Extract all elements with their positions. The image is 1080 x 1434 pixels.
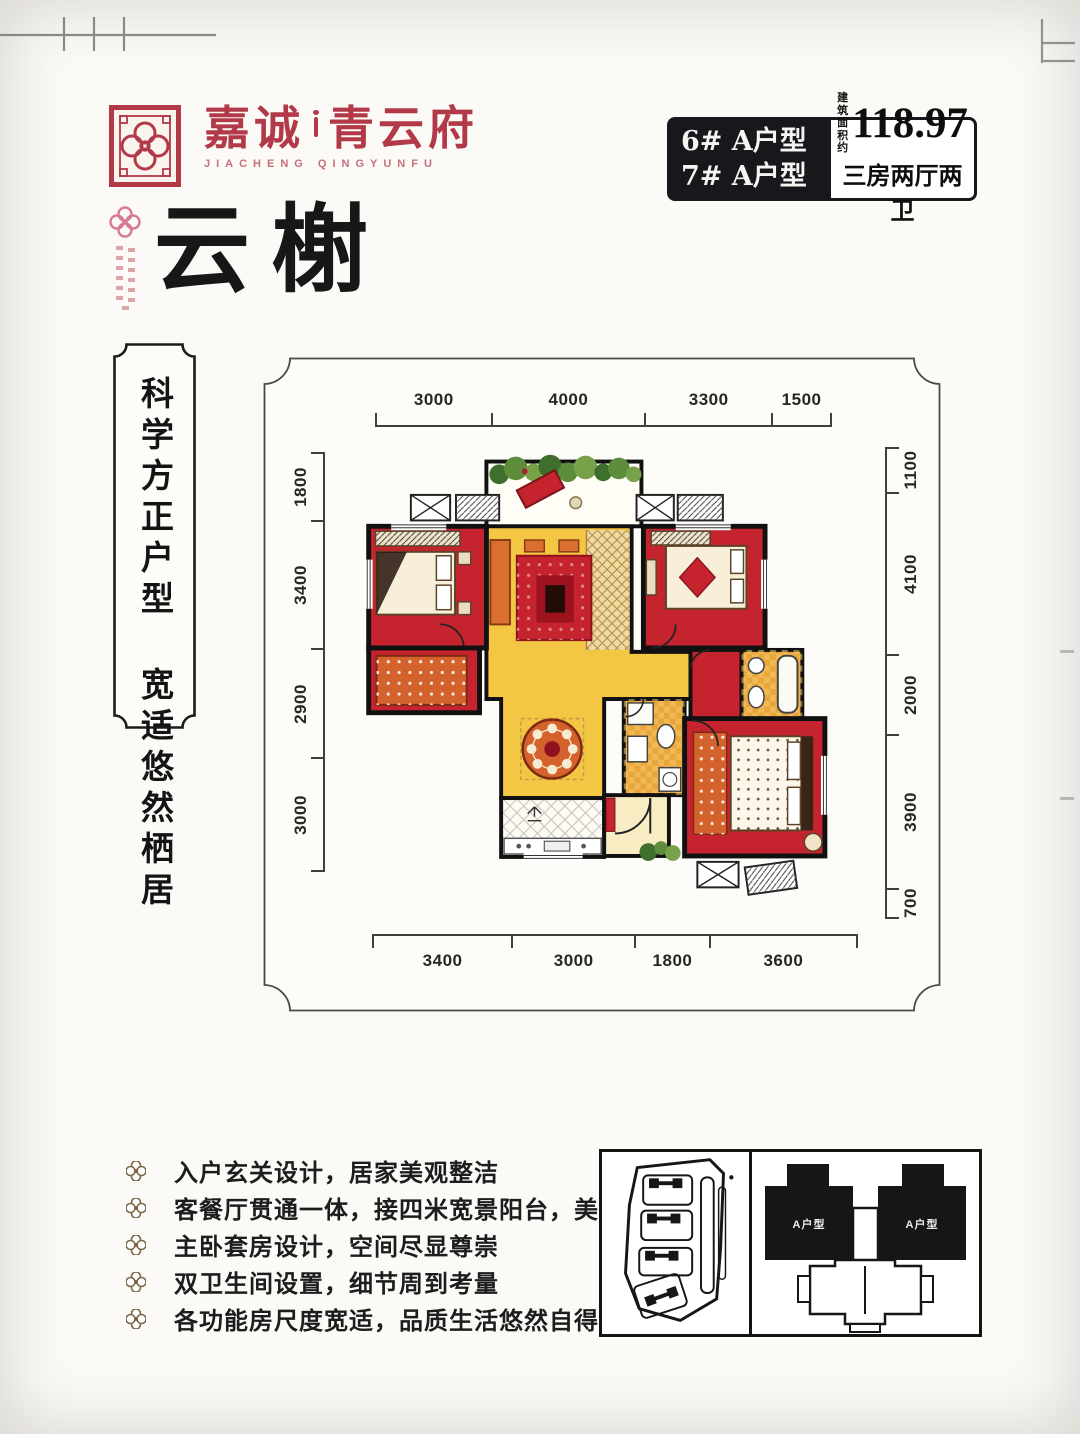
feature-item: 主卧套房设计，空间尽显尊崇 xyxy=(126,1226,674,1263)
dim-label: 1100 xyxy=(901,438,921,502)
dim-label: 3600 xyxy=(763,951,803,971)
feature-text: 双卫生间设置，细节周到考量 xyxy=(174,1264,499,1299)
unit-line-1: 6# A户型 xyxy=(681,126,831,157)
dim-label: 2000 xyxy=(901,663,921,727)
feature-item: 入户玄关设计，居家美观整洁 xyxy=(126,1152,674,1189)
dim-label: 1800 xyxy=(653,951,693,971)
bedroom-secondary-1 xyxy=(369,526,487,648)
feature-list: 入户玄关设计，居家美观整洁 客餐厅贯通一体，接四米宽景阳台，美景尽现 主卧套房设… xyxy=(126,1152,674,1337)
site-plan-panel xyxy=(602,1152,752,1334)
floorplan-drawing xyxy=(352,440,872,905)
bathroom-shared xyxy=(624,699,685,795)
keyplan-panel: A户型 A户型 xyxy=(752,1152,979,1334)
feature-text: 各功能房尺度宽适，品质生活悠然自得 xyxy=(174,1301,599,1336)
dim-label: 4000 xyxy=(548,390,588,410)
floorplan-card: 3000 4000 3300 1500 1800 3400 2900 3000 … xyxy=(263,357,941,1012)
dining-table xyxy=(521,719,584,780)
keyplan-unit-label: A户型 xyxy=(906,1217,939,1231)
brand-name-right: 青云府 xyxy=(328,103,478,154)
dims-right: 1100 4100 2000 3900 700 xyxy=(885,447,897,919)
entry-foyer xyxy=(604,795,681,861)
unit-area-panel: 建筑 面积约 118.97 三房两厅两卫 xyxy=(831,117,977,201)
site-plan-sketch xyxy=(602,1152,749,1334)
dim-label: 3300 xyxy=(689,390,729,410)
room-layout: 三房两厅两卫 xyxy=(837,156,968,226)
flower-bullet-icon xyxy=(126,1272,146,1292)
flower-bullet-icon xyxy=(126,1235,146,1255)
dims-top: 3000 4000 3300 1500 xyxy=(375,397,832,427)
feature-text: 入户玄关设计，居家美观整洁 xyxy=(174,1153,499,1188)
feature-item: 各功能房尺度宽适，品质生活悠然自得 xyxy=(126,1300,674,1337)
title-block: 云榭 xyxy=(104,202,390,325)
suite-hallway xyxy=(690,650,741,719)
page-title: 云榭 xyxy=(154,202,390,325)
keyplan-drawing: A户型 A户型 xyxy=(752,1152,979,1334)
kitchen xyxy=(501,798,604,857)
bathroom-ensuite xyxy=(742,650,803,719)
keyplan-unit-label: A户型 xyxy=(793,1217,826,1231)
registration-mark-top-right xyxy=(1012,16,1078,82)
dim-label: 4100 xyxy=(901,542,921,606)
brand-seal-icon xyxy=(108,103,182,194)
unit-line-2: 7# A户型 xyxy=(681,161,831,192)
flyer-page: 嘉诚 青云府 JIACHENG QINGYUNFU 6# A户型 7# A户型 … xyxy=(0,0,1080,1434)
dims-left: 1800 3400 2900 3000 xyxy=(311,452,323,872)
area-value: 118.97 xyxy=(852,102,968,145)
dim-label: 700 xyxy=(901,871,921,935)
registration-mark-top-left xyxy=(0,8,225,58)
feature-item: 双卫生间设置，细节周到考量 xyxy=(126,1263,674,1300)
unit-spec-box: 6# A户型 7# A户型 建筑 面积约 118.97 三房两厅两卫 xyxy=(667,117,977,201)
title-seal-icon xyxy=(104,202,146,325)
feature-text: 主卧套房设计，空间尽显尊崇 xyxy=(174,1227,499,1262)
dim-label: 3000 xyxy=(554,951,594,971)
locator-diagrams: A户型 A户型 xyxy=(599,1149,982,1337)
dim-label: 3000 xyxy=(291,783,311,847)
dim-label: 3000 xyxy=(414,390,454,410)
brand-separator-mark xyxy=(314,117,318,137)
bedroom-secondary-2 xyxy=(643,526,765,648)
dim-label: 1500 xyxy=(782,390,822,410)
brand-header: 嘉诚 青云府 JIACHENG QINGYUNFU xyxy=(108,103,478,194)
dim-label: 2900 xyxy=(291,672,311,736)
balcony xyxy=(486,455,641,527)
dim-label: 3900 xyxy=(901,780,921,844)
feature-item: 客餐厅贯通一体，接四米宽景阳台，美景尽现 xyxy=(126,1189,674,1226)
slogan-text: 科学方正户型 宽适悠然栖居 xyxy=(131,376,179,913)
brand-name-left: 嘉诚 xyxy=(204,103,304,154)
brand-name: 嘉诚 青云府 xyxy=(204,103,478,154)
flower-bullet-icon xyxy=(126,1198,146,1218)
dims-bottom: 3400 3000 1800 3600 xyxy=(372,934,858,968)
area-label: 建筑 面积约 xyxy=(837,92,848,155)
multi-function-room xyxy=(369,648,480,713)
dim-label: 1800 xyxy=(291,455,311,519)
slogan-banner: 科学方正户型 宽适悠然栖居 xyxy=(112,342,197,730)
dim-label: 3400 xyxy=(291,553,311,617)
bedroom-master xyxy=(685,719,825,856)
dim-label: 3400 xyxy=(423,951,463,971)
flower-bullet-icon xyxy=(126,1161,146,1181)
scan-edge-mark xyxy=(1060,650,1074,653)
flower-bullet-icon xyxy=(126,1309,146,1329)
brand-name-en: JIACHENG QINGYUNFU xyxy=(204,158,478,170)
unit-numbers: 6# A户型 7# A户型 xyxy=(667,117,831,201)
scan-edge-mark xyxy=(1060,797,1074,800)
